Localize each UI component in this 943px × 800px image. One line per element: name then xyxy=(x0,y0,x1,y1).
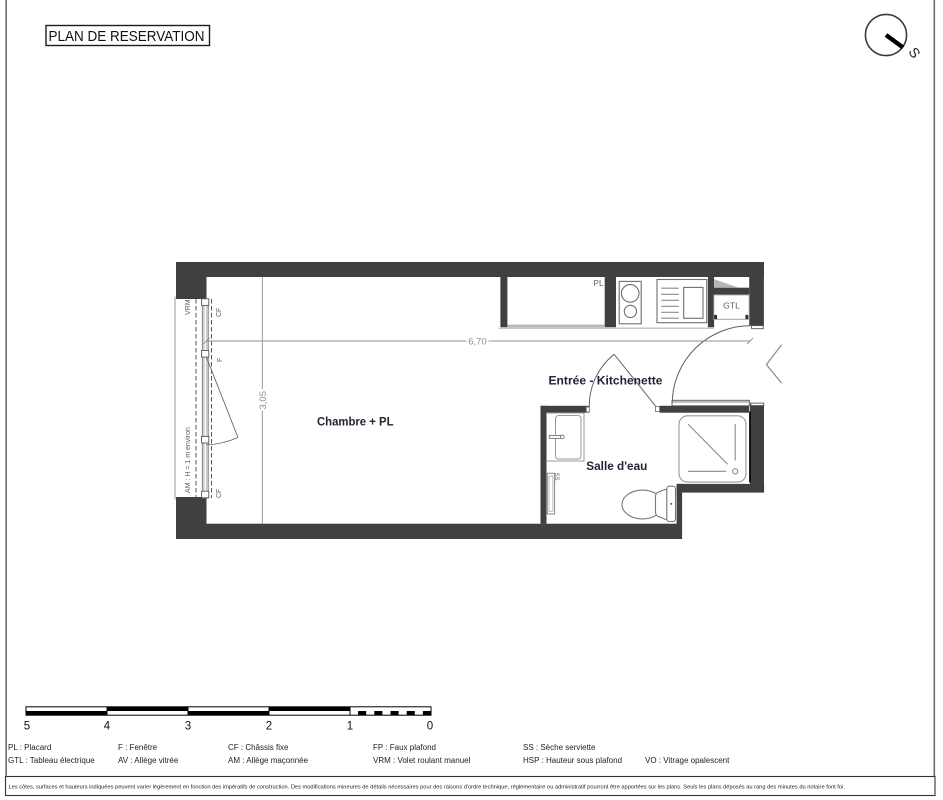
svg-text:Les côtes, surfaces et hauteur: Les côtes, surfaces et hauteurs indiquée… xyxy=(9,785,846,791)
svg-text:4: 4 xyxy=(104,721,111,733)
svg-text:GTL: GTL xyxy=(723,301,740,311)
svg-text:PL: PL xyxy=(593,279,603,288)
svg-text:Chambre + PL: Chambre + PL xyxy=(317,415,394,429)
svg-text:CF: CF xyxy=(216,489,223,498)
svg-text:F : Fenêtre: F : Fenêtre xyxy=(118,743,158,752)
svg-text:6,70: 6,70 xyxy=(468,337,487,348)
svg-text:2: 2 xyxy=(266,721,272,733)
svg-text:VRM: VRM xyxy=(185,299,192,315)
svg-text:PLAN DE RESERVATION: PLAN DE RESERVATION xyxy=(49,28,205,45)
svg-text:5: 5 xyxy=(24,721,30,733)
svg-text:CF : Châssis fixe: CF : Châssis fixe xyxy=(228,743,289,752)
svg-text:SS: SS xyxy=(553,473,559,481)
svg-text:VO : Vitrage opalescent: VO : Vitrage opalescent xyxy=(645,756,730,765)
svg-text:F: F xyxy=(217,358,224,362)
svg-text:PL : Placard: PL : Placard xyxy=(8,743,51,752)
svg-text:SS : Sèche serviette: SS : Sèche serviette xyxy=(523,743,596,752)
svg-text:1: 1 xyxy=(347,721,353,733)
svg-text:0: 0 xyxy=(427,721,433,733)
svg-text:CF: CF xyxy=(216,308,223,317)
svg-text:GTL : Tableau électrique: GTL : Tableau électrique xyxy=(8,756,95,765)
svg-text:AM : Allège maçonnée: AM : Allège maçonnée xyxy=(228,756,309,765)
svg-text:FP : Faux plafond: FP : Faux plafond xyxy=(373,743,436,752)
svg-text:3: 3 xyxy=(185,721,191,733)
svg-text:S: S xyxy=(905,44,923,61)
svg-text:HSP : Hauteur sous plafond: HSP : Hauteur sous plafond xyxy=(523,756,622,765)
svg-text:VRM : Volet roulant manuel: VRM : Volet roulant manuel xyxy=(373,756,471,765)
svg-text:3,05: 3,05 xyxy=(258,391,269,410)
svg-text:AM : H = 1 m environ: AM : H = 1 m environ xyxy=(185,427,192,493)
svg-text:Salle d'eau: Salle d'eau xyxy=(586,459,647,473)
svg-text:Entrée - Kitchenette: Entrée - Kitchenette xyxy=(549,374,663,388)
svg-text:AV : Allège vitrée: AV : Allège vitrée xyxy=(118,756,179,765)
